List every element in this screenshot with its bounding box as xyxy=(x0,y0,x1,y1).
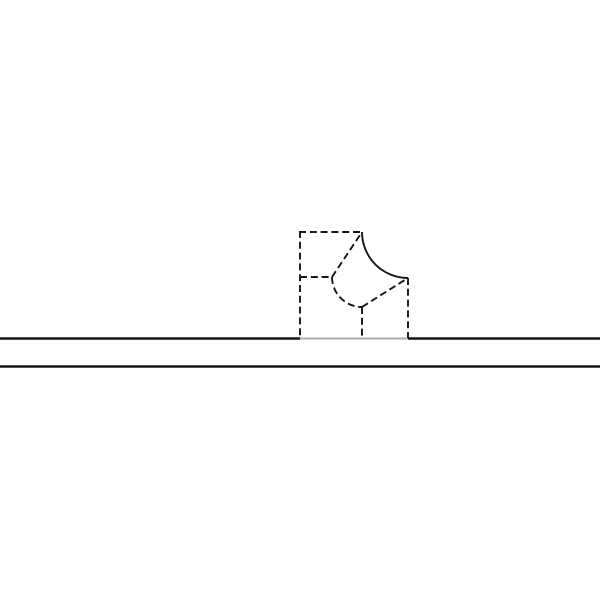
inner-diagonal-to-top xyxy=(332,232,362,277)
notch-outer-arc xyxy=(362,232,408,278)
inner-diagonal-to-right xyxy=(362,278,408,307)
technical-drawing xyxy=(0,0,600,600)
drawing-page xyxy=(0,0,600,600)
inner-notch-arc xyxy=(332,277,362,307)
